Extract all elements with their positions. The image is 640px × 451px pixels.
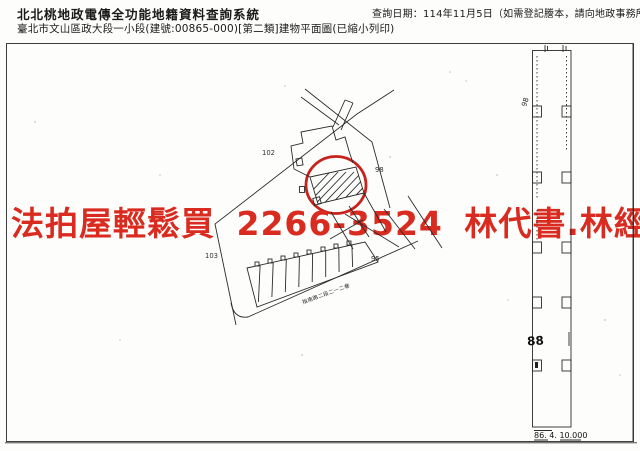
cadastral-query-page: 北北桃地政電傳全功能地籍資料查詢系統 臺北市文山區政大段一小段(建號:00865… xyxy=(0,0,640,451)
strip-label-88: 88 xyxy=(527,333,545,348)
subject-building xyxy=(288,100,402,216)
strip-plan: 98 88 86. 4. 10.000 xyxy=(520,45,587,440)
parcel-label-95: 95 xyxy=(371,255,380,263)
building-hatch xyxy=(288,172,402,216)
strip-label-98: 98 xyxy=(520,97,530,108)
parcel-label-102: 102 xyxy=(262,149,275,157)
frame-border xyxy=(5,44,637,443)
parcel-label-98: 98 xyxy=(375,166,384,174)
road-label: 指南路二段二一二巷 xyxy=(301,281,351,306)
parcel-label-103: 103 xyxy=(205,252,218,260)
strip-scale-note: 86. 4. 10.000 xyxy=(534,431,587,440)
cadastral-map: 102 103 98 95 指南路二段二一二巷 xyxy=(0,0,640,451)
